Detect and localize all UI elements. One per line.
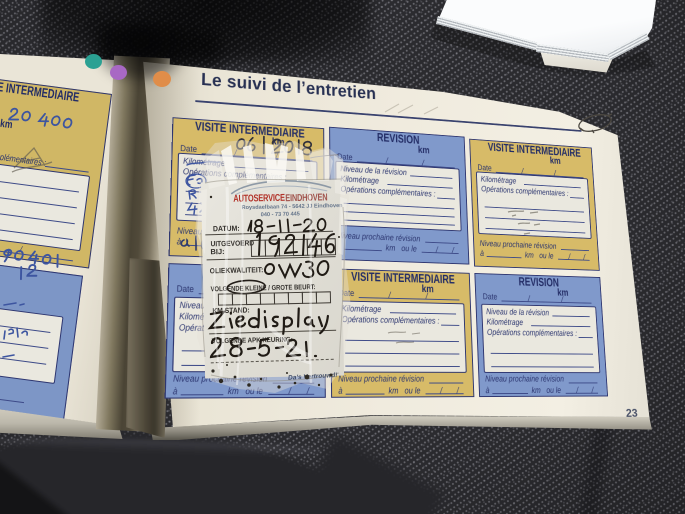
svg-text:040 - 73 70 445: 040 - 73 70 445 — [261, 211, 300, 218]
svg-text:BIJ:: BIJ: — [210, 247, 224, 256]
svg-text:EINDHOVEN: EINDHOVEN — [285, 191, 327, 203]
svg-text:OLIEKWALITEIT:: OLIEKWALITEIT: — [210, 266, 264, 276]
